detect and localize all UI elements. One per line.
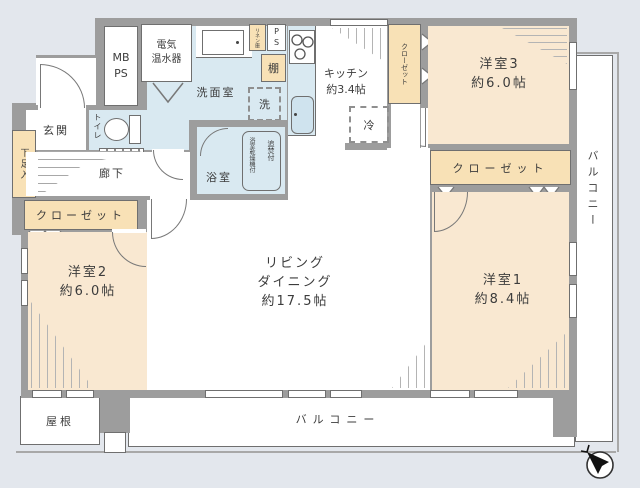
linen-cabinet: リネン庫 <box>249 24 266 51</box>
toilet-label: トイレ <box>92 113 103 140</box>
bathroom-wall-left <box>189 120 197 196</box>
pillar-right <box>553 394 577 437</box>
washing-machine-label: 洗 <box>259 96 270 112</box>
shelf-box: 棚 <box>261 54 286 82</box>
corridor-label: 廊下 <box>96 166 128 182</box>
room1-window-bottom-1 <box>430 390 470 398</box>
stove-burners <box>289 30 315 64</box>
entrance-label: 玄関 <box>43 122 69 138</box>
bathtub: 追焚付 浴室乾燥機付 <box>242 131 281 191</box>
kitchen-label: キッチン 約3.4帖 <box>316 66 376 98</box>
room2-window-bottom-2 <box>66 390 94 398</box>
water-heater-box: 電気 温水器 <box>141 24 192 82</box>
room3-label: 洋室3 約6.0帖 <box>452 56 547 94</box>
washing-machine-box: 洗 <box>248 87 281 121</box>
room1-label: 洋室1 約8.4帖 <box>458 272 548 310</box>
room1-window-bottom-2 <box>474 390 518 398</box>
kitchen-window-top <box>330 19 388 26</box>
closet-room3-bottom: クローゼット <box>430 150 571 185</box>
living-window-bottom-3 <box>330 390 362 398</box>
pipe-space-label: P S <box>274 27 279 48</box>
room1-window-right-1 <box>569 242 577 276</box>
bathroom-wall-top <box>189 120 287 127</box>
washbasin-faucet <box>236 41 239 44</box>
pillar-left <box>100 393 130 433</box>
living-window-bottom-2 <box>288 390 326 398</box>
toilet-bowl <box>104 118 129 141</box>
room1-window-right-2 <box>569 284 577 318</box>
roof-area: 屋根 <box>20 396 100 445</box>
kitchen-lower-wall <box>345 143 391 150</box>
refrigerator-box: 冷 <box>349 106 389 143</box>
living-dining-label: リビング ダイニング 約17.5帖 <box>230 255 360 312</box>
pillar-left-base <box>104 432 126 453</box>
refrigerator-label: 冷 <box>364 117 375 133</box>
shelf-label: 棚 <box>268 60 279 76</box>
balcony-outer-line-right <box>617 52 619 452</box>
floor-plan: バルコニー バルコニー 屋根 洗面室 リネン庫 P S 棚 洗 MB PS 電気… <box>0 0 640 488</box>
bathroom-label: 浴室 <box>200 170 238 186</box>
room2-label: 洋室2 約6.0帖 <box>43 264 133 302</box>
room2-window-bottom-1 <box>32 390 62 398</box>
room3-vestibule <box>391 104 420 150</box>
balcony-right-label: バルコニー <box>584 150 600 230</box>
compass-north-icon <box>578 442 620 484</box>
living-window-bottom-1 <box>205 390 283 398</box>
bathtub-note-dryer: 浴室乾燥機付 <box>247 137 256 173</box>
room3-window-right <box>569 42 577 90</box>
balcony-outer-line-top <box>576 52 619 54</box>
bathtub-note-reheat: 追焚付 <box>266 140 276 161</box>
living-top-nook <box>387 148 430 202</box>
closet-room3-side: クローゼット <box>388 24 421 104</box>
room2-window-2 <box>21 280 28 306</box>
toilet-tank <box>129 115 141 144</box>
closet-room3-bottom-label: クローゼット <box>453 160 549 176</box>
water-heater-door-mark <box>151 82 185 104</box>
entry-alcove-edge <box>36 55 96 58</box>
closet-left-label: クローゼット <box>36 207 126 223</box>
room2-window-1 <box>21 248 28 274</box>
closet-left: クローゼット <box>24 200 138 230</box>
balcony-bottom-label: バルコニー <box>278 412 398 428</box>
linen-cabinet-label: リネン庫 <box>254 28 261 48</box>
water-heater-label: 電気 温水器 <box>152 39 182 67</box>
meter-pipe-space-label: MB PS <box>112 50 129 83</box>
kitchen-sink-drain <box>294 113 297 116</box>
balcony-right <box>575 55 613 442</box>
meter-pipe-space-box: MB PS <box>104 26 138 106</box>
closet-room3-side-label: クローゼット <box>400 43 410 85</box>
roof-label: 屋根 <box>46 413 74 429</box>
washroom-label: 洗面室 <box>190 85 242 101</box>
washroom-floor-lower <box>147 122 190 150</box>
pipe-space-box: P S <box>267 24 286 51</box>
